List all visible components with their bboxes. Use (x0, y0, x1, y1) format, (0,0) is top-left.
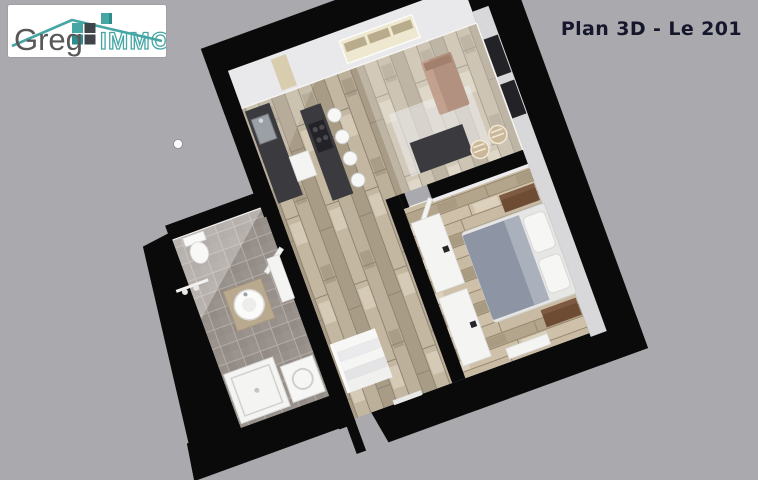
agency-logo-art: Greg IMMO (8, 5, 166, 57)
floor-plan-canvas (0, 0, 758, 480)
brand-text-secondary: IMMO (100, 28, 166, 55)
light-point-marker (174, 140, 183, 149)
chimney-icon (101, 13, 112, 24)
page-title: Plan 3D - Le 201 (561, 18, 742, 40)
building (56, 0, 652, 480)
screenshot-stage: Greg IMMO Plan 3D - Le 201 (0, 0, 758, 480)
agency-logo: Greg IMMO (8, 5, 166, 57)
brand-text-primary: Greg (14, 22, 83, 57)
